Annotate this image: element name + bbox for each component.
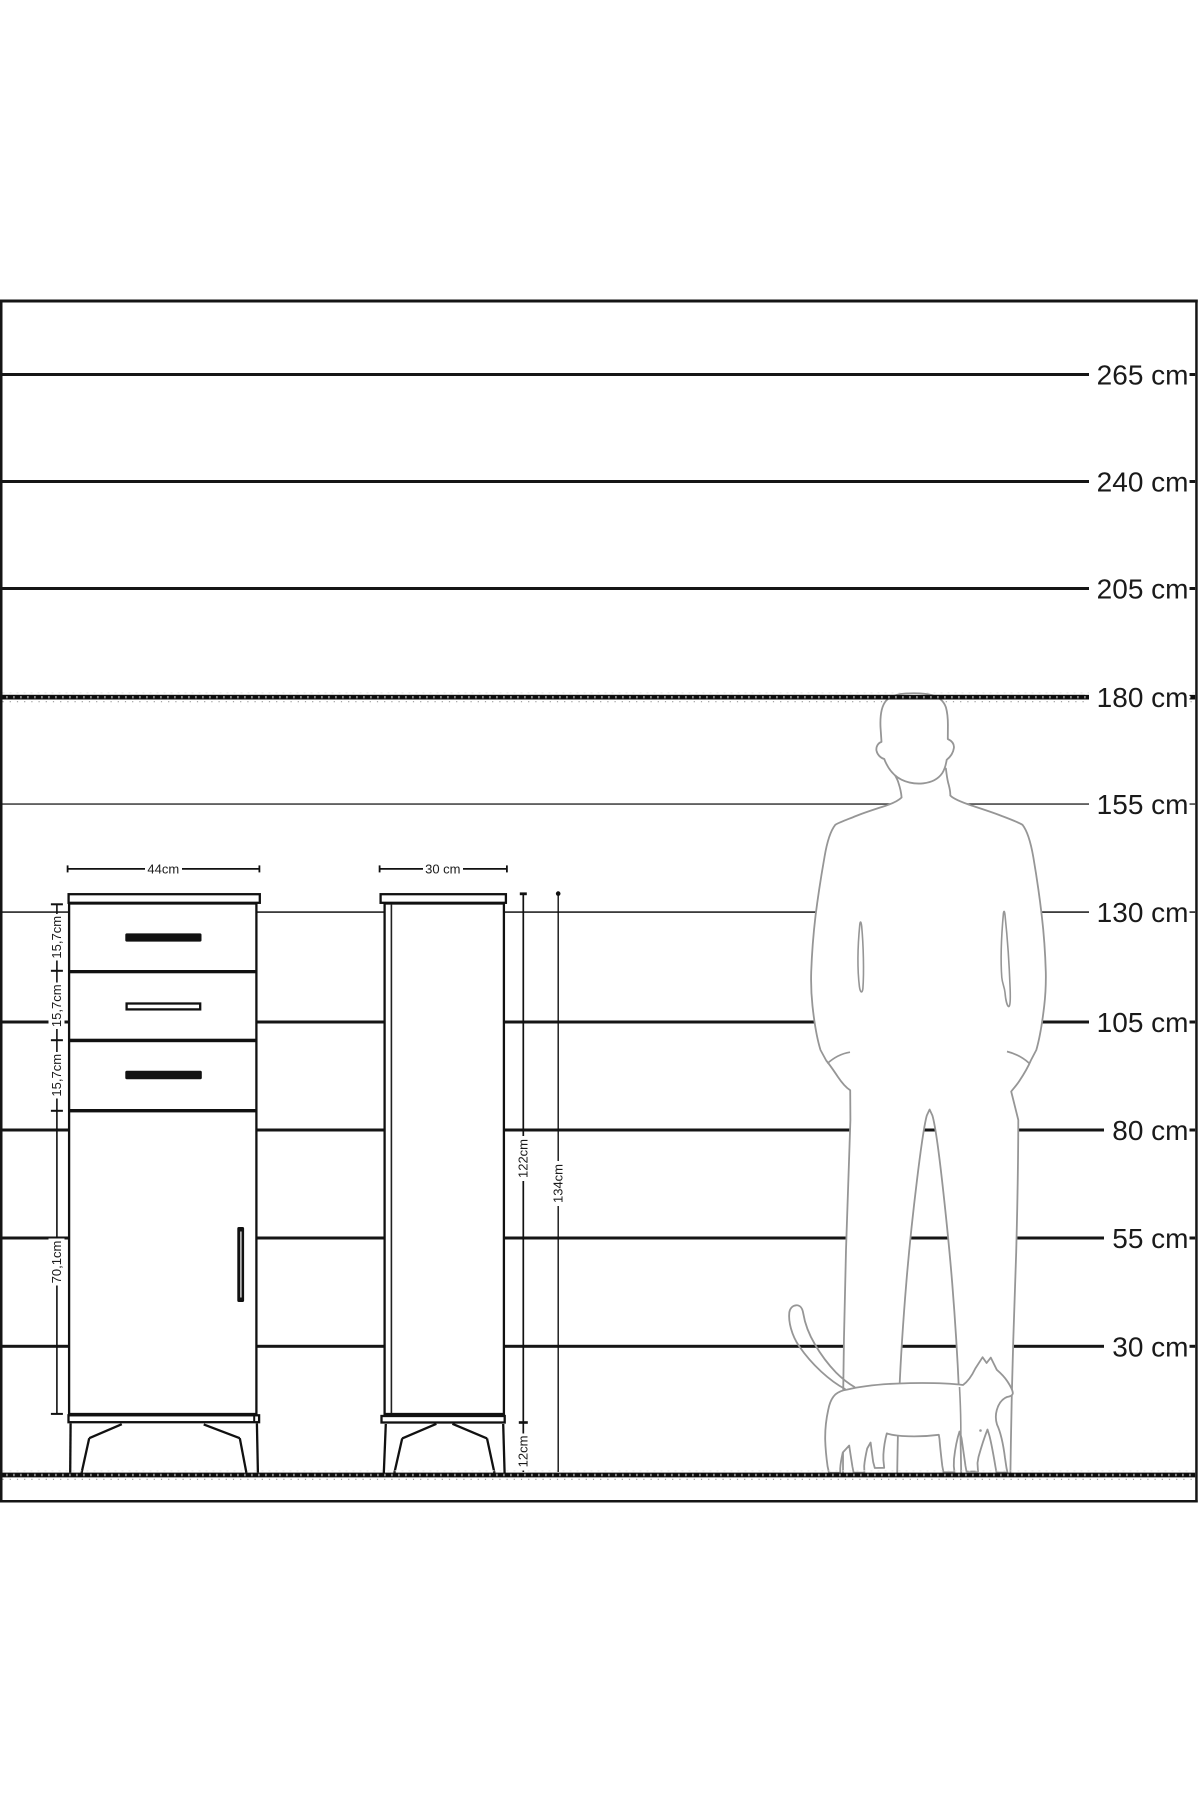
svg-text:12cm: 12cm: [516, 1436, 531, 1468]
svg-text:15,7cm: 15,7cm: [49, 916, 64, 959]
svg-text:55 cm: 55 cm: [1112, 1223, 1188, 1254]
svg-text:130 cm: 130 cm: [1097, 897, 1189, 928]
svg-text:70,1cm: 70,1cm: [49, 1241, 64, 1284]
svg-text:134cm: 134cm: [551, 1164, 566, 1203]
svg-text:180 cm: 180 cm: [1097, 682, 1189, 713]
svg-text:155 cm: 155 cm: [1097, 789, 1189, 820]
svg-text:240 cm: 240 cm: [1097, 467, 1189, 498]
svg-text:30 cm: 30 cm: [425, 862, 460, 877]
svg-text:15,7cm: 15,7cm: [49, 1054, 64, 1097]
svg-text:80 cm: 80 cm: [1112, 1115, 1188, 1146]
svg-text:265 cm: 265 cm: [1097, 360, 1189, 391]
svg-text:122cm: 122cm: [516, 1139, 531, 1178]
svg-text:15,7cm: 15,7cm: [49, 984, 64, 1027]
svg-text:30 cm: 30 cm: [1112, 1331, 1188, 1362]
svg-text:105 cm: 105 cm: [1097, 1007, 1189, 1038]
svg-text:205 cm: 205 cm: [1097, 574, 1189, 605]
svg-text:44cm: 44cm: [147, 862, 179, 877]
